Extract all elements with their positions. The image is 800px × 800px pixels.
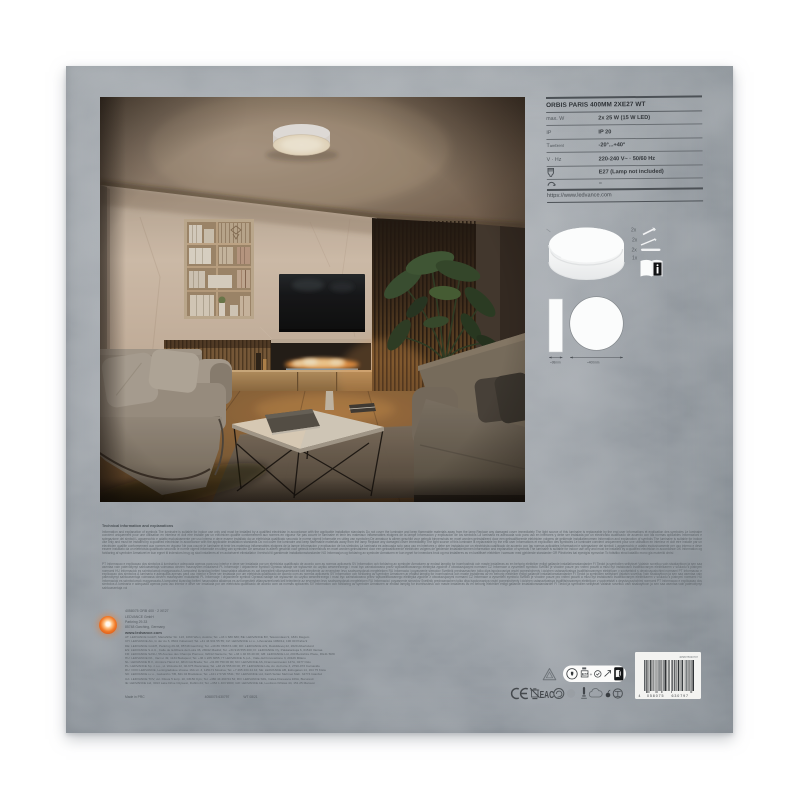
svg-text:≈400mm: ≈400mm: [587, 361, 600, 365]
svg-text:+: +: [590, 672, 593, 677]
svg-text:2x: 2x: [632, 248, 638, 254]
svg-text:630797: 630797: [672, 694, 689, 698]
svg-text:2x: 2x: [632, 238, 638, 244]
svg-text:1x: 1x: [632, 255, 638, 261]
svg-text:2x: 2x: [631, 228, 637, 234]
svg-text:≈98mm: ≈98mm: [550, 361, 561, 365]
svg-text:E27: E27: [582, 673, 588, 677]
svg-text:4: 4: [639, 694, 641, 698]
svg-text:058075: 058075: [647, 694, 664, 698]
svg-text:4058075630797: 4058075630797: [679, 655, 698, 659]
svg-text:EAC: EAC: [540, 689, 555, 701]
